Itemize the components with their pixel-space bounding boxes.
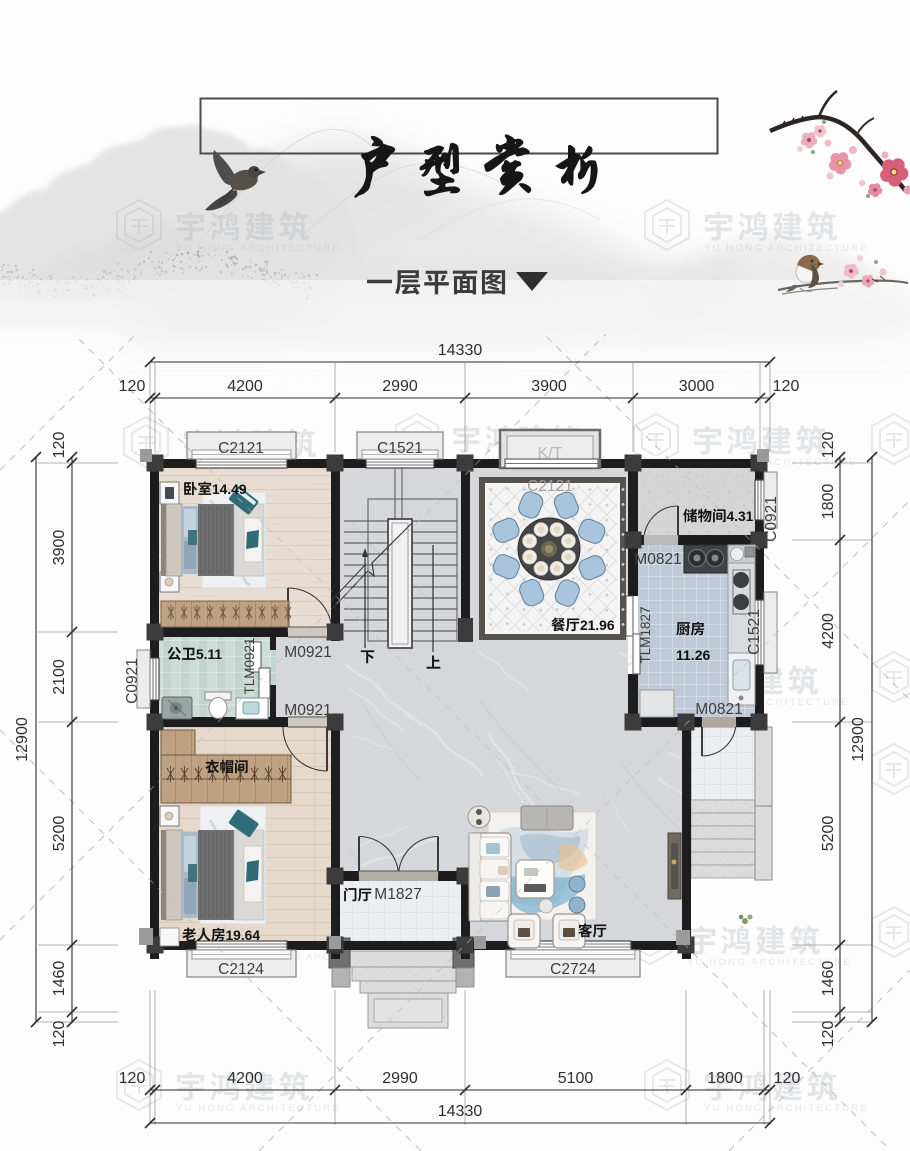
svg-text:2100: 2100	[51, 659, 68, 695]
svg-text:C2724: C2724	[550, 961, 596, 978]
svg-text:M1827: M1827	[374, 886, 421, 903]
svg-text:120: 120	[119, 1070, 146, 1087]
svg-text:M0821: M0821	[695, 701, 742, 718]
svg-text:1460: 1460	[820, 961, 837, 997]
svg-text:120: 120	[51, 432, 68, 459]
svg-text:TLM1827: TLM1827	[638, 606, 653, 663]
svg-text:3900: 3900	[531, 378, 567, 395]
svg-text:C2124: C2124	[218, 961, 264, 978]
svg-text:11.26: 11.26	[676, 647, 710, 663]
svg-text:YU HONG ARCHITECTURE: YU HONG ARCHITECTURE	[176, 1103, 341, 1114]
svg-text:120: 120	[773, 378, 800, 395]
svg-text:14.49: 14.49	[212, 482, 247, 497]
svg-text:C2121: C2121	[218, 440, 264, 457]
svg-text:M0921: M0921	[284, 702, 331, 719]
svg-text:4200: 4200	[820, 613, 837, 649]
svg-text:19.64: 19.64	[226, 928, 261, 943]
svg-text:C0921: C0921	[763, 496, 780, 542]
svg-text:TLM0921: TLM0921	[242, 637, 257, 694]
svg-text:5200: 5200	[820, 816, 837, 852]
svg-text:4.31: 4.31	[727, 509, 754, 524]
svg-text:M0921: M0921	[284, 644, 331, 661]
svg-text:120: 120	[774, 1070, 801, 1087]
svg-text:C1521: C1521	[377, 440, 423, 457]
svg-text:120: 120	[119, 378, 146, 395]
svg-text:21.96: 21.96	[580, 618, 615, 633]
svg-text:14330: 14330	[438, 1103, 483, 1120]
svg-text:M0821: M0821	[634, 551, 681, 568]
svg-text:1460: 1460	[51, 961, 68, 997]
svg-text:C0921: C0921	[124, 658, 141, 704]
svg-text:YU HONG ARCHITECTURE: YU HONG ARCHITECTURE	[704, 243, 869, 254]
svg-text:2990: 2990	[382, 378, 418, 395]
svg-text:3000: 3000	[679, 378, 715, 395]
svg-text:1800: 1800	[820, 484, 837, 520]
svg-text:5200: 5200	[51, 816, 68, 852]
svg-text:120: 120	[820, 432, 837, 459]
svg-text:4200: 4200	[227, 1070, 263, 1087]
svg-text:1800: 1800	[707, 1070, 743, 1087]
svg-text:120: 120	[51, 1021, 68, 1048]
svg-text:5.11: 5.11	[196, 647, 222, 662]
svg-text:C2121: C2121	[527, 478, 573, 495]
svg-text:120: 120	[820, 1021, 837, 1048]
svg-text:C1521: C1521	[746, 609, 763, 655]
svg-text:2990: 2990	[382, 1070, 418, 1087]
svg-text:12900: 12900	[850, 717, 867, 762]
svg-text:12900: 12900	[14, 717, 31, 762]
svg-text:4200: 4200	[227, 378, 263, 395]
svg-text:YU HONG ARCHITECTURE: YU HONG ARCHITECTURE	[176, 243, 341, 254]
svg-text:3900: 3900	[51, 530, 68, 566]
svg-text:14330: 14330	[438, 342, 483, 359]
svg-text:5100: 5100	[558, 1070, 594, 1087]
